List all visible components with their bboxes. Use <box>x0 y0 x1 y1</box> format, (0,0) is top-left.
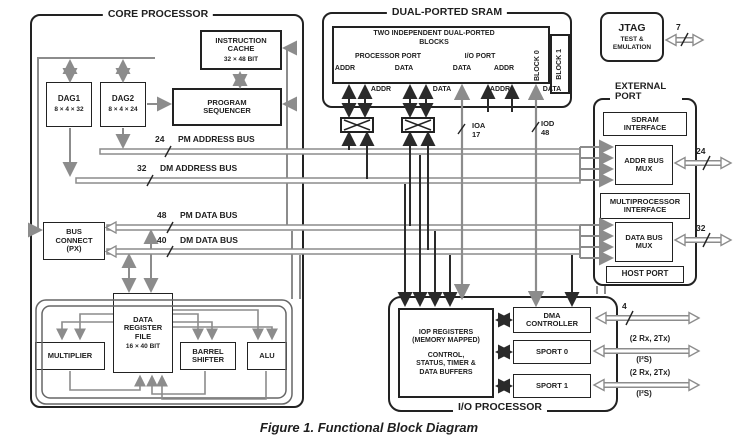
pm-data-bus-label: PM DATA BUS <box>180 210 237 220</box>
ioa-bus-label: IOA 17 <box>472 122 485 139</box>
wiring-layer <box>0 0 738 444</box>
pm-addr-bus-label: PM ADDRESS BUS <box>178 134 255 144</box>
sram-port-wires <box>341 87 539 304</box>
dm-data-bus <box>107 249 580 254</box>
dm-data-bus-label: DM DATA BUS <box>180 235 238 245</box>
ext-addr-width-label: 24 <box>696 146 705 156</box>
iod-width: 48 <box>541 129 554 138</box>
sram-processor-port-label: PROCESSOR PORT <box>355 53 421 60</box>
sram-proc-addr-label: ADDR <box>335 65 355 72</box>
sport0-mode-label: (I²S) <box>636 355 652 364</box>
pm-data-bus-width: 48 <box>157 210 166 220</box>
pm-address-bus <box>100 149 580 154</box>
core-wires <box>38 47 300 299</box>
sram-proc-addr2-label: ADDR <box>371 86 391 93</box>
dm-data-bus-width: 40 <box>157 235 166 245</box>
block-diagram: CORE PROCESSOR DUAL-PORTED SRAM EXTERNAL… <box>0 0 738 444</box>
figure-caption: Figure 1. Functional Block Diagram <box>260 420 478 435</box>
sram-proc-data-label: DATA <box>395 65 413 72</box>
pm-addr-bus-width: 24 <box>155 134 164 144</box>
ioa-width: 17 <box>472 131 485 140</box>
compute-loop <box>36 300 292 404</box>
sram-io-data2-label: DATA <box>543 86 561 93</box>
sram-blocks-note: TWO INDEPENDENT DUAL-PORTED BLOCKS <box>368 30 500 47</box>
dma-width-label: 4 <box>622 301 627 311</box>
sport1-mode-label: (I²S) <box>636 389 652 398</box>
io-processor-title: I/O PROCESSOR <box>453 401 547 413</box>
sram-io-data-label: DATA <box>453 65 471 72</box>
ext-port-stubs <box>580 147 611 294</box>
pm-data-bus <box>107 225 580 230</box>
dm-addr-bus-label: DM ADDRESS BUS <box>160 163 237 173</box>
sram-title: DUAL-PORTED SRAM <box>387 6 507 18</box>
jtag-width-label: 7 <box>676 22 681 32</box>
sram-io-addr2-label: ADDR <box>490 86 510 93</box>
sram-block0-label: BLOCK 0 <box>534 29 541 81</box>
core-processor-title: CORE PROCESSOR <box>103 8 213 20</box>
ext-data-width-label: 32 <box>696 223 705 233</box>
sram-io-port-label: I/O PORT <box>465 53 496 60</box>
regfile-unit-wires <box>62 310 272 399</box>
sram-io-addr-label: ADDR <box>494 65 514 72</box>
sram-proc-data2-label: DATA <box>433 86 451 93</box>
external-port-title: EXTERNAL PORT <box>610 82 682 102</box>
iod-bus-label: IOD 48 <box>541 120 554 137</box>
sport1-channels-label: (2 Rx, 2Tx) <box>630 368 670 377</box>
sport0-channels-label: (2 Rx, 2Tx) <box>630 334 670 343</box>
dm-addr-bus-width: 32 <box>137 163 146 173</box>
iop-feed-wires <box>405 155 572 386</box>
